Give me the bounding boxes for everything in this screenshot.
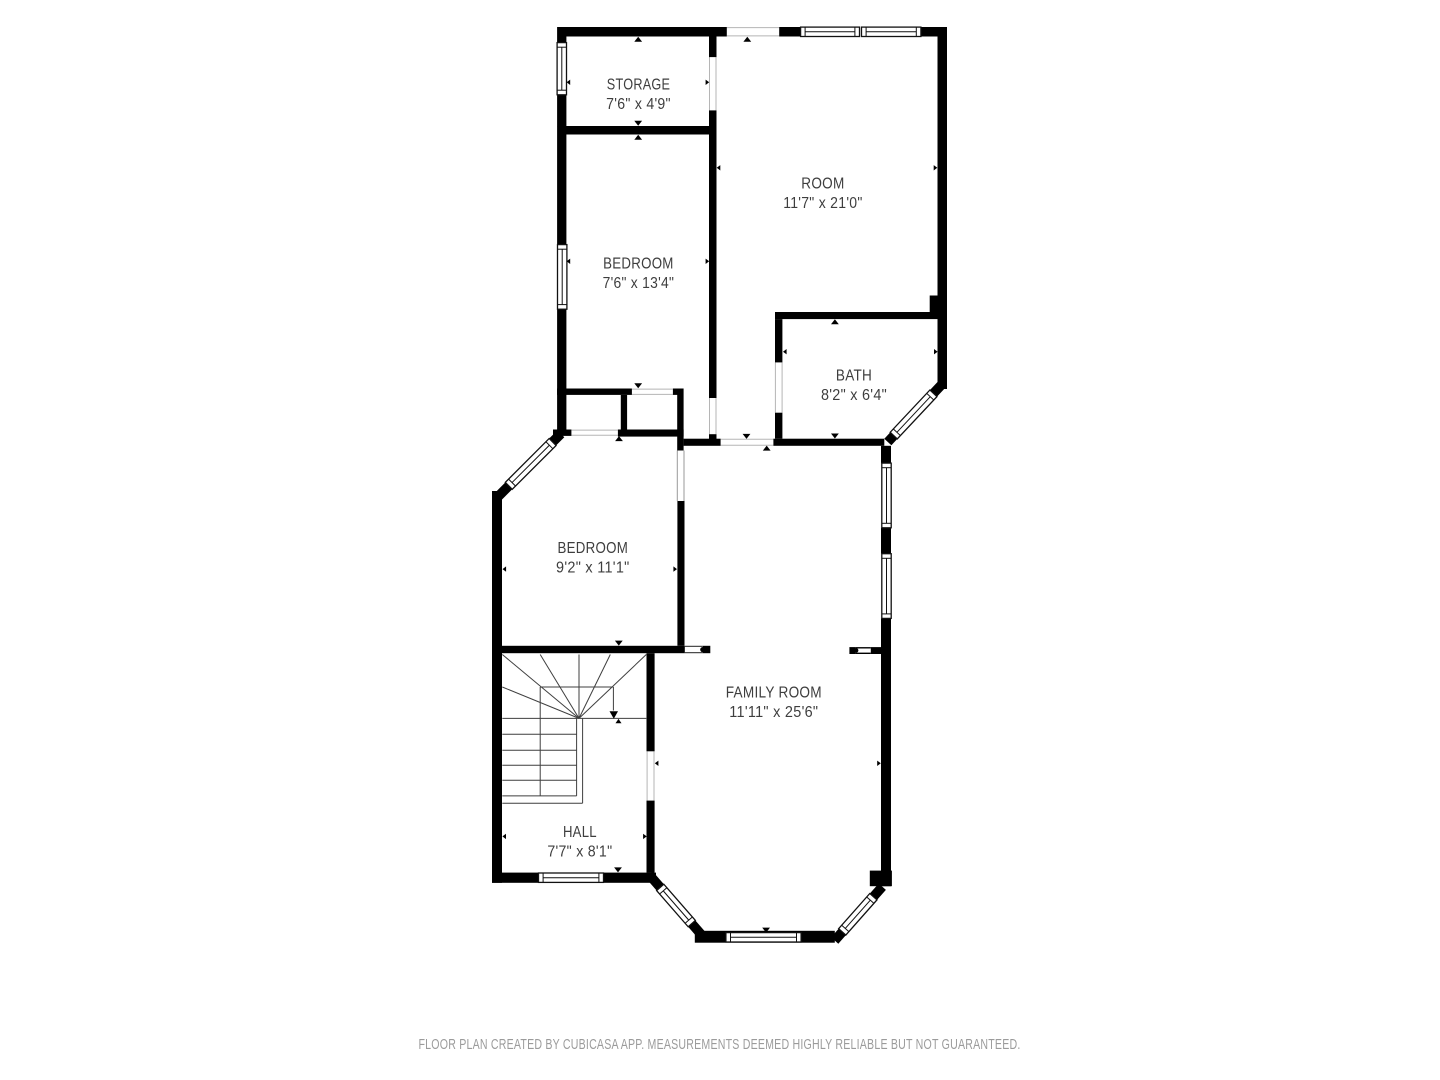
svg-text:7'6" x 4'9": 7'6" x 4'9" bbox=[606, 96, 671, 113]
svg-text:9'2" x 11'1": 9'2" x 11'1" bbox=[556, 560, 630, 577]
svg-text:ROOM: ROOM bbox=[801, 176, 844, 193]
svg-text:FAMILY ROOM: FAMILY ROOM bbox=[726, 685, 822, 702]
svg-text:BEDROOM: BEDROOM bbox=[603, 256, 674, 273]
svg-text:FLOOR PLAN CREATED BY CUBICASA: FLOOR PLAN CREATED BY CUBICASA APP. MEAS… bbox=[419, 1036, 1021, 1053]
svg-text:11'7" x 21'0": 11'7" x 21'0" bbox=[783, 195, 862, 212]
svg-text:BATH: BATH bbox=[836, 368, 872, 385]
svg-text:8'2" x 6'4": 8'2" x 6'4" bbox=[821, 387, 887, 404]
svg-text:BEDROOM: BEDROOM bbox=[558, 540, 629, 557]
svg-text:7'6" x 13'4": 7'6" x 13'4" bbox=[603, 275, 675, 292]
svg-text:7'7" x 8'1": 7'7" x 8'1" bbox=[547, 844, 612, 861]
svg-text:11'11" x 25'6": 11'11" x 25'6" bbox=[729, 704, 818, 721]
svg-text:HALL: HALL bbox=[563, 824, 597, 841]
svg-text:STORAGE: STORAGE bbox=[607, 77, 671, 94]
